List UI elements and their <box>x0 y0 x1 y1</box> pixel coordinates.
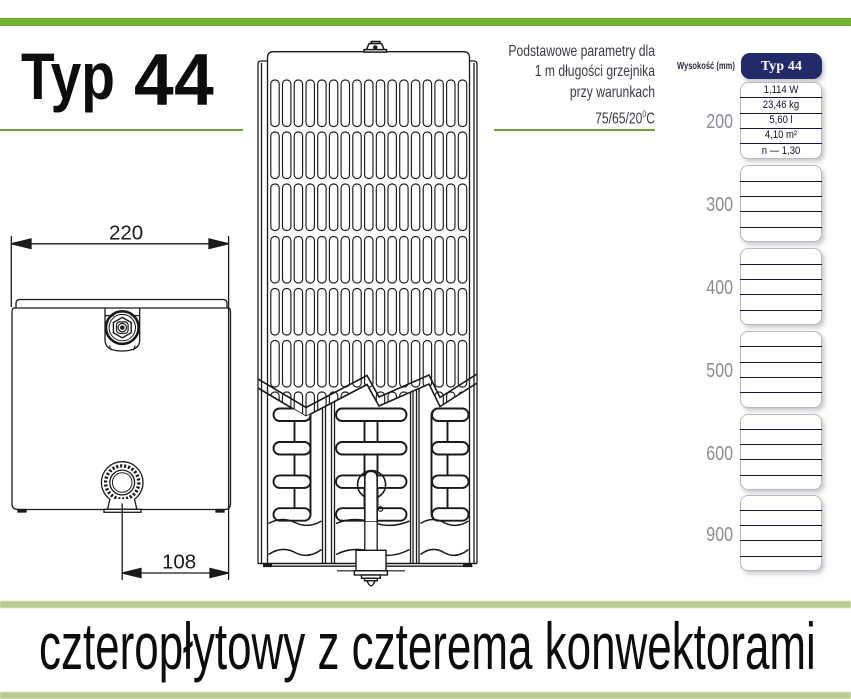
svg-text:108: 108 <box>162 551 196 574</box>
svg-text:220: 220 <box>109 222 143 245</box>
